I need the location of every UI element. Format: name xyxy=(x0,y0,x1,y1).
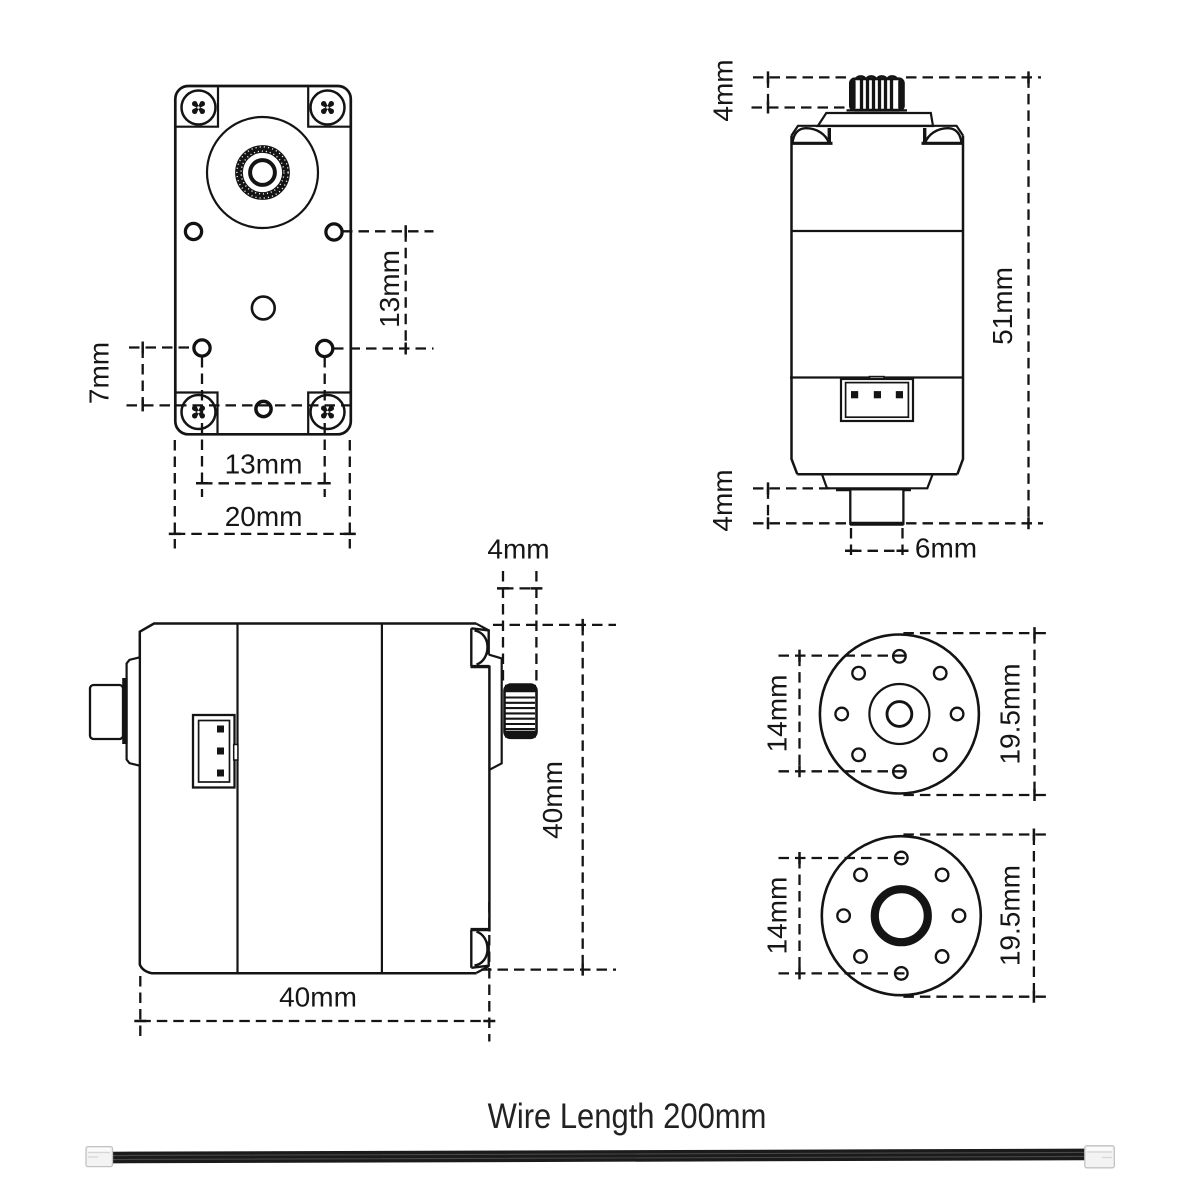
svg-text:14mm: 14mm xyxy=(762,877,793,955)
svg-text:4mm: 4mm xyxy=(708,59,739,121)
svg-text:19.5mm: 19.5mm xyxy=(994,865,1025,966)
svg-text:7mm: 7mm xyxy=(84,342,115,404)
svg-text:14mm: 14mm xyxy=(762,675,793,753)
svg-text:40mm: 40mm xyxy=(537,761,568,839)
svg-text:20mm: 20mm xyxy=(225,501,303,532)
svg-text:4mm: 4mm xyxy=(707,469,738,531)
svg-text:6mm: 6mm xyxy=(915,533,977,564)
svg-text:19.5mm: 19.5mm xyxy=(994,663,1025,764)
svg-text:4mm: 4mm xyxy=(487,534,549,565)
svg-text:13mm: 13mm xyxy=(225,449,303,480)
svg-text:Wire Length 200mm: Wire Length 200mm xyxy=(488,1097,767,1136)
svg-text:40mm: 40mm xyxy=(279,982,357,1013)
svg-text:13mm: 13mm xyxy=(374,250,405,328)
svg-text:51mm: 51mm xyxy=(987,267,1018,345)
